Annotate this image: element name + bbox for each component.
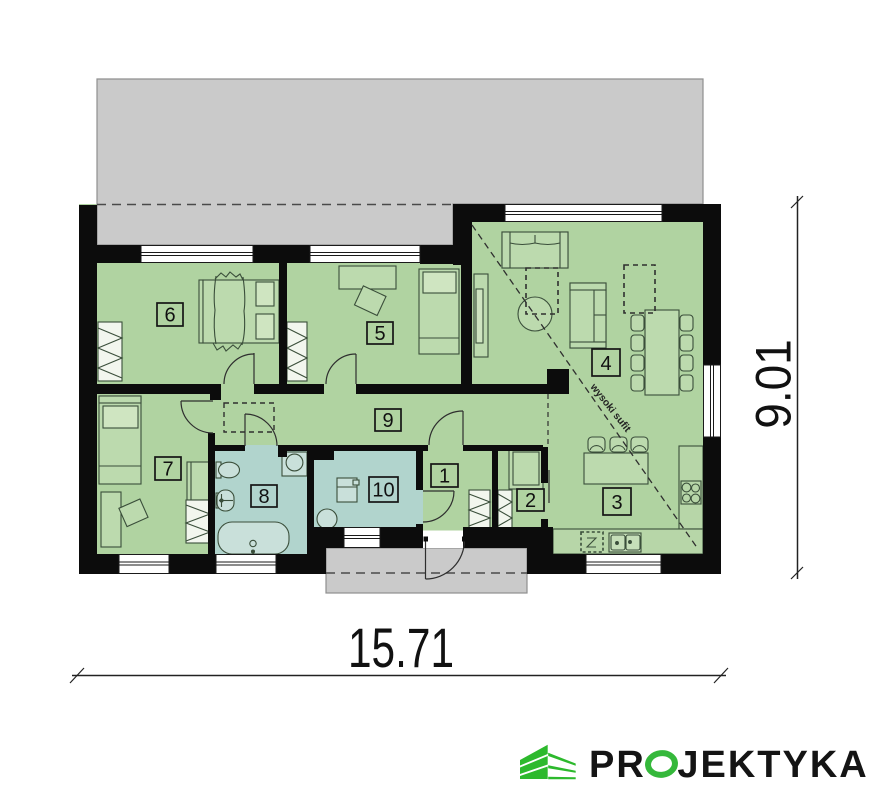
svg-text:7: 7 <box>162 459 173 481</box>
svg-text:10: 10 <box>372 480 394 502</box>
svg-text:9: 9 <box>382 410 393 432</box>
svg-text:1: 1 <box>439 466 450 488</box>
svg-text:5: 5 <box>374 323 385 345</box>
svg-text:6: 6 <box>164 305 175 327</box>
svg-text:8: 8 <box>258 486 269 508</box>
svg-text:9.01: 9.01 <box>747 339 802 429</box>
svg-text:2: 2 <box>525 490 536 512</box>
svg-text:15.71: 15.71 <box>348 616 454 679</box>
svg-text:4: 4 <box>600 353 611 375</box>
svg-text:PROJEKTYKA: PROJEKTYKA <box>589 744 869 786</box>
svg-text:3: 3 <box>611 492 622 514</box>
